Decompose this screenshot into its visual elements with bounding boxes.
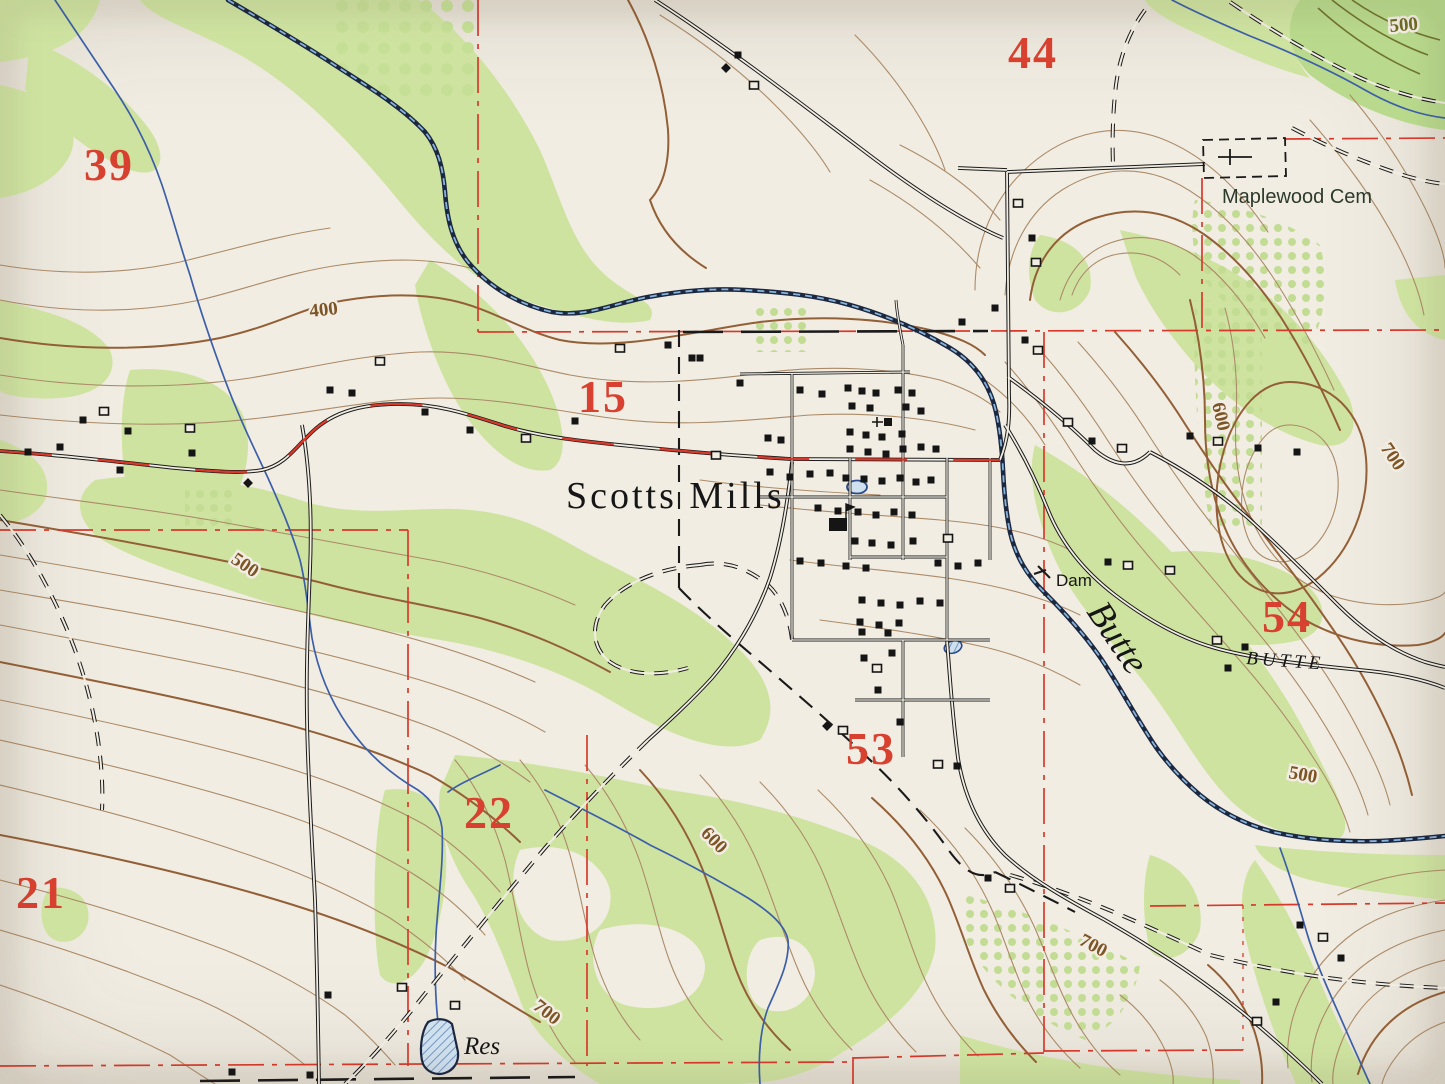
building: [835, 508, 842, 515]
building: [1006, 885, 1015, 893]
building: [878, 600, 885, 607]
building: [849, 403, 856, 410]
building: [522, 435, 531, 443]
building: [689, 355, 696, 362]
building: [327, 387, 334, 394]
building: [889, 650, 896, 657]
building: [903, 404, 910, 411]
building: [1255, 445, 1262, 452]
building: [899, 431, 906, 438]
contour-label-500: 500: [1389, 14, 1419, 37]
building: [665, 342, 672, 349]
section-number-44: 44: [1008, 27, 1058, 78]
building: [376, 358, 385, 366]
building: [125, 428, 132, 435]
building: [186, 425, 195, 433]
section-number-39: 39: [84, 139, 134, 190]
building: [80, 417, 87, 424]
building: [818, 560, 825, 567]
building: [861, 655, 868, 662]
building: [913, 479, 920, 486]
church-building: [872, 417, 892, 427]
building: [847, 446, 854, 453]
building: [876, 622, 883, 629]
building: [1089, 438, 1096, 445]
dam-symbol: [1034, 566, 1050, 578]
building: [827, 470, 834, 477]
building: [750, 82, 759, 90]
building: [909, 512, 916, 519]
cemetery-cross-icon: [1218, 149, 1252, 165]
building: [891, 509, 898, 516]
building: [1253, 1018, 1262, 1026]
building: [819, 391, 826, 398]
contour-label-700: 700: [1376, 439, 1409, 474]
building: [1225, 665, 1232, 672]
building: [1213, 637, 1222, 645]
building: [735, 52, 742, 59]
building: [918, 444, 925, 451]
building: [863, 565, 870, 572]
building: [855, 509, 862, 516]
contour-label-400: 400: [308, 298, 339, 322]
building: [1187, 433, 1194, 440]
building: [900, 446, 907, 453]
building: [1338, 955, 1345, 962]
building: [737, 380, 744, 387]
building: [885, 630, 892, 637]
building: [467, 427, 474, 434]
section-number-15: 15: [578, 371, 628, 422]
building: [398, 984, 407, 992]
building: [909, 390, 916, 397]
town-name-label: Scotts Mills: [566, 475, 785, 517]
building: [1166, 567, 1175, 575]
building: [879, 478, 886, 485]
building: [807, 471, 814, 478]
reservoir: [421, 1019, 458, 1074]
topo-map: 39441554532221Scotts MillsMaplewood CemD…: [0, 0, 1445, 1084]
building: [873, 665, 882, 673]
building: [1105, 559, 1112, 566]
building: [847, 429, 854, 436]
building: [815, 505, 822, 512]
building: [787, 474, 794, 481]
building: [937, 600, 944, 607]
building: [975, 560, 982, 567]
building: [349, 390, 356, 397]
dam-label-label: Dam: [1056, 571, 1092, 590]
building: [697, 355, 704, 362]
building: [859, 597, 866, 604]
building: [1294, 449, 1301, 456]
building: [897, 719, 904, 726]
building: [857, 619, 864, 626]
building: [100, 408, 109, 416]
building: [797, 558, 804, 565]
building: [896, 620, 903, 627]
building: [883, 451, 890, 458]
building: [869, 540, 876, 547]
building: [1124, 562, 1133, 570]
building: [189, 450, 196, 457]
building: [1034, 347, 1043, 355]
section-number-21: 21: [16, 867, 66, 918]
building: [917, 598, 924, 605]
building: [935, 560, 942, 567]
building: [1214, 438, 1223, 446]
building: [1064, 419, 1073, 427]
building: [873, 390, 880, 397]
building: [879, 434, 886, 441]
building: [57, 444, 64, 451]
building: [897, 602, 904, 609]
building: [765, 435, 772, 442]
building: [1022, 337, 1029, 344]
building: [1118, 445, 1127, 453]
building: [451, 1002, 460, 1010]
building: [873, 512, 880, 519]
building: [616, 345, 625, 353]
building: [910, 538, 917, 545]
building: [778, 437, 785, 444]
cemetery-name-label: Maplewood Cem: [1222, 186, 1372, 208]
building: [895, 387, 902, 394]
building: [852, 538, 859, 545]
building: [843, 475, 850, 482]
building: [867, 405, 874, 412]
building: [1319, 934, 1328, 942]
building: [955, 563, 962, 570]
building: [712, 452, 721, 460]
building: [422, 409, 429, 416]
building: [944, 535, 953, 543]
building: [1029, 235, 1036, 242]
building: [897, 475, 904, 482]
building: [959, 319, 966, 326]
building: [918, 408, 925, 415]
building: [843, 563, 850, 570]
building: [863, 432, 870, 439]
building: [325, 992, 332, 999]
building: [954, 763, 961, 770]
building: [933, 446, 940, 453]
building: [888, 542, 895, 549]
building: [1297, 922, 1304, 929]
building: [25, 449, 32, 456]
building: [1273, 999, 1280, 1006]
building: [934, 761, 943, 769]
reservoir-name-label: Res: [463, 1033, 500, 1060]
building: [992, 305, 999, 312]
section-number-22: 22: [464, 787, 514, 838]
section-number-53: 53: [846, 723, 896, 774]
building: [797, 387, 804, 394]
section-number-54: 54: [1262, 591, 1312, 642]
building: [1014, 200, 1023, 208]
building: [1032, 259, 1041, 267]
building: [861, 476, 868, 483]
building: [117, 467, 124, 474]
building: [859, 388, 866, 395]
woodland-areas: [0, 0, 1445, 1084]
building: [865, 449, 872, 456]
building: [875, 687, 882, 694]
building: [845, 385, 852, 392]
building: [928, 477, 935, 484]
building: [985, 875, 992, 882]
building: [859, 629, 866, 636]
